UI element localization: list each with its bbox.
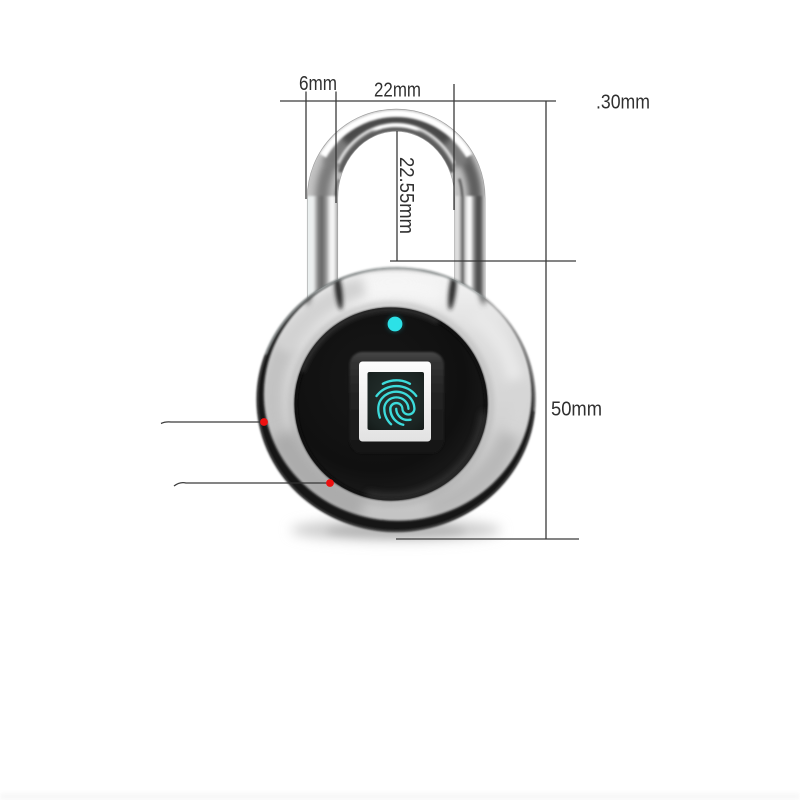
svg-text:50mm: 50mm: [551, 399, 602, 421]
svg-text:6mm: 6mm: [299, 73, 337, 95]
svg-text:22.55mm: 22.55mm: [395, 157, 417, 234]
svg-text:.30mm: .30mm: [596, 92, 650, 114]
svg-text:22mm: 22mm: [374, 80, 421, 102]
